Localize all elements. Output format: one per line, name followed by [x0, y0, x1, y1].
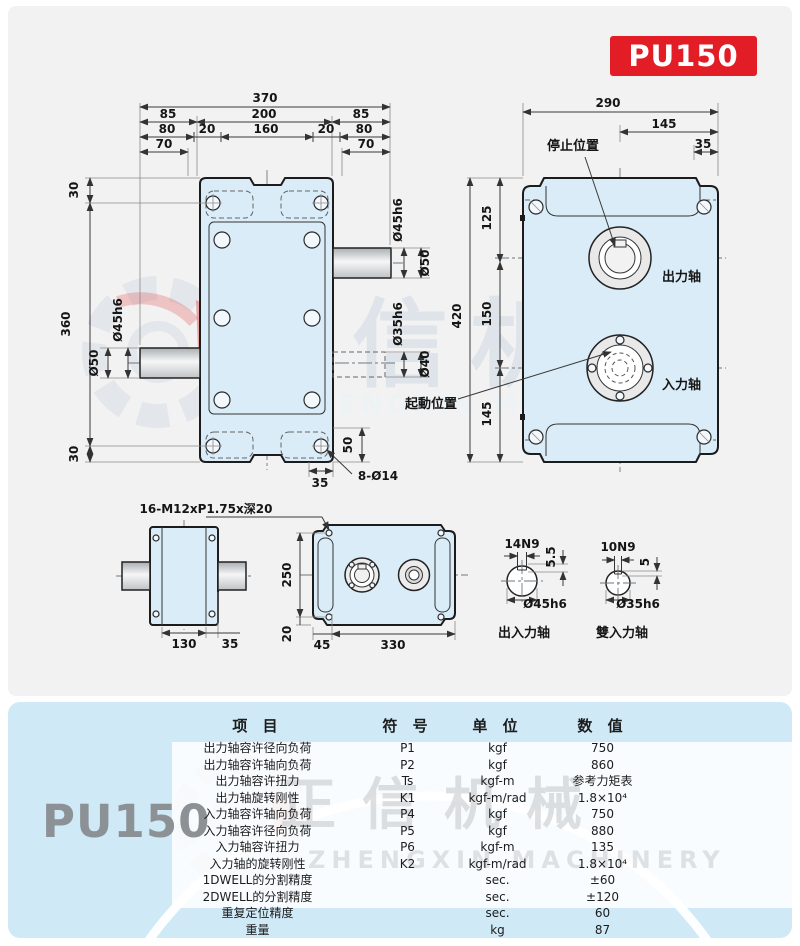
- spec-table: 项 目 符 号 单 位 数 值 出力轴容许径向负荷P1kgf750 出力轴容许轴…: [150, 710, 670, 938]
- dim-250: 250: [280, 562, 294, 587]
- header-value: 数 值: [545, 715, 660, 736]
- dim-dia50-left: Ø50: [87, 350, 101, 377]
- dim-145-left: 145: [480, 401, 494, 426]
- dim-50: 50: [341, 437, 355, 454]
- dim-35-side: 35: [222, 637, 239, 651]
- front-left-shaft: [140, 348, 200, 378]
- datasheet-page: 正信机械 ZHENGXIN MACHINERY: [0, 0, 800, 946]
- dim-30-top: 30: [67, 182, 81, 199]
- spec-row: 出力轴容许轴向负荷P2kgf860: [150, 757, 670, 774]
- dim-35-plan: 35: [695, 137, 712, 151]
- header-item: 项 目: [150, 715, 365, 736]
- thread-note-label: 16-M12xP1.75x深20: [140, 501, 273, 516]
- front-right-shaft: [333, 248, 391, 278]
- header-unit: 单 位: [450, 715, 545, 736]
- spec-row: 1DWELL的分割精度sec.±60: [150, 872, 670, 889]
- dim-dia45h6-right: Ø45h6: [391, 198, 405, 242]
- dim-dia45h6-left: Ø45h6: [111, 298, 125, 342]
- spec-row: 重复定位精度sec.60: [150, 905, 670, 922]
- spec-row: 2DWELL的分割精度sec.±120: [150, 889, 670, 906]
- dim-8xdia14: 8-Ø14: [358, 469, 398, 483]
- shaft-section-input: 10N9 5 Ø35h6 雙入力轴: [596, 540, 662, 641]
- spec-row: 入力轴容许径向负荷P5kgf880: [150, 823, 670, 840]
- input-shaft-flange: [587, 335, 653, 401]
- dim-30-bottom: 30: [67, 446, 81, 463]
- spec-row: 出力轴容许径向负荷P1kgf750: [150, 740, 670, 757]
- dim-200: 200: [251, 107, 276, 121]
- dim-keydepth-5: 5: [638, 558, 652, 566]
- spec-row: 入力轴容许轴向负荷P4kgf750: [150, 806, 670, 823]
- side-view-drawing: 130 35: [116, 520, 252, 651]
- dim-290: 290: [595, 96, 620, 110]
- dim-420: 420: [450, 303, 464, 328]
- output-shaft-flange: [589, 227, 651, 289]
- dim-70-right: 70: [358, 137, 375, 151]
- dim-85-left: 85: [160, 107, 177, 121]
- dim-330: 330: [380, 638, 405, 652]
- dim-dia50-right: Ø50: [418, 250, 432, 277]
- dim-dia40: Ø40: [418, 351, 432, 378]
- dim-20-right: 20: [318, 122, 335, 136]
- header-symbol: 符 号: [365, 715, 450, 736]
- bottom-output-flange: [345, 558, 379, 592]
- dim-80-right: 80: [356, 122, 373, 136]
- dim-160: 160: [253, 122, 278, 136]
- dim-keyway-10N9: 10N9: [600, 540, 635, 554]
- start-position-label: 起動位置: [404, 396, 457, 412]
- spec-row: 重量kg87: [150, 922, 670, 939]
- bottom-input-flange: [399, 560, 430, 591]
- dim-dia45h6-section: Ø45h6: [523, 597, 567, 611]
- dim-370: 370: [252, 91, 277, 105]
- spec-row: 入力轴的旋转刚性K2kgf-m/rad1.8×10⁴: [150, 856, 670, 873]
- dim-20-left: 20: [199, 122, 216, 136]
- dim-125: 125: [480, 205, 494, 230]
- stop-position-label: 停止位置: [547, 138, 599, 154]
- dim-80-left: 80: [159, 122, 176, 136]
- dim-130: 130: [171, 637, 196, 651]
- input-shaft-label: 入力轴: [662, 377, 701, 393]
- spec-row: 入力轴容许扭力P6kgf-m135: [150, 839, 670, 856]
- dim-35: 35: [312, 476, 329, 490]
- spec-table-header: 项 目 符 号 单 位 数 值: [150, 710, 670, 740]
- dim-keyway-14N9: 14N9: [504, 537, 539, 551]
- shaft-section-output: 14N9 5.5 Ø45h6 出入力轴: [498, 537, 568, 641]
- spec-row: 出力轴旋转刚性K1kgf-m/rad1.8×10⁴: [150, 790, 670, 807]
- dim-keydepth-5p5: 5.5: [544, 546, 558, 567]
- model-badge-label: PU150: [628, 39, 738, 73]
- dim-dia35h6-section: Ø35h6: [616, 597, 660, 611]
- dim-20: 20: [280, 626, 294, 643]
- dim-70-left: 70: [156, 137, 173, 151]
- model-badge: PU150: [610, 36, 757, 76]
- dim-dia35h6: Ø35h6: [391, 302, 405, 346]
- io-shaft-label: 出入力轴: [498, 625, 550, 641]
- dual-input-shaft-label: 雙入力轴: [596, 625, 648, 641]
- dim-360: 360: [59, 311, 73, 336]
- spec-row: 出力轴容许扭力Tskgf-m参考力矩表: [150, 773, 670, 790]
- dim-45: 45: [314, 638, 331, 652]
- dim-145-top: 145: [651, 117, 676, 131]
- output-shaft-label: 出力轴: [662, 269, 701, 285]
- dim-150: 150: [480, 301, 494, 326]
- dim-85-right: 85: [353, 107, 370, 121]
- technical-drawings: 正信机械 ZHENGXIN MACHINERY: [0, 0, 800, 700]
